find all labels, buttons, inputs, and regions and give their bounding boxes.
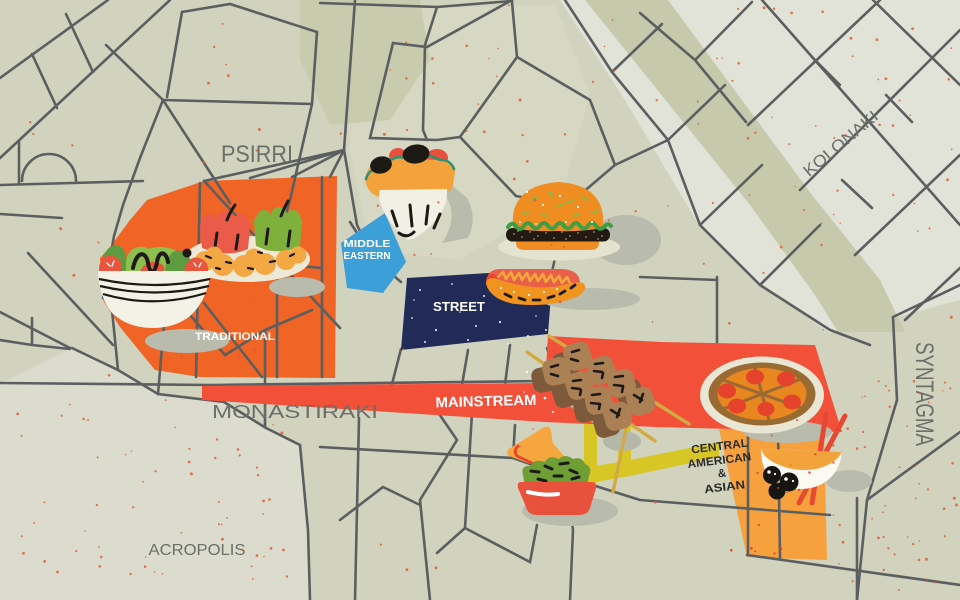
svg-text:EASTERN: EASTERN <box>344 251 391 262</box>
svg-text:PSIRRI: PSIRRI <box>221 141 293 168</box>
svg-text:MAINSTREAM: MAINSTREAM <box>435 393 536 412</box>
svg-text:MIDDLE: MIDDLE <box>344 239 391 250</box>
svg-text:&: & <box>717 467 727 480</box>
svg-text:TRADITIONAL: TRADITIONAL <box>195 331 275 343</box>
svg-text:MONASTIRAKI: MONASTIRAKI <box>212 402 378 422</box>
svg-text:STREET: STREET <box>433 299 485 314</box>
svg-text:ACROPOLIS: ACROPOLIS <box>149 542 246 559</box>
svg-text:SYNTAGMA: SYNTAGMA <box>910 342 938 446</box>
